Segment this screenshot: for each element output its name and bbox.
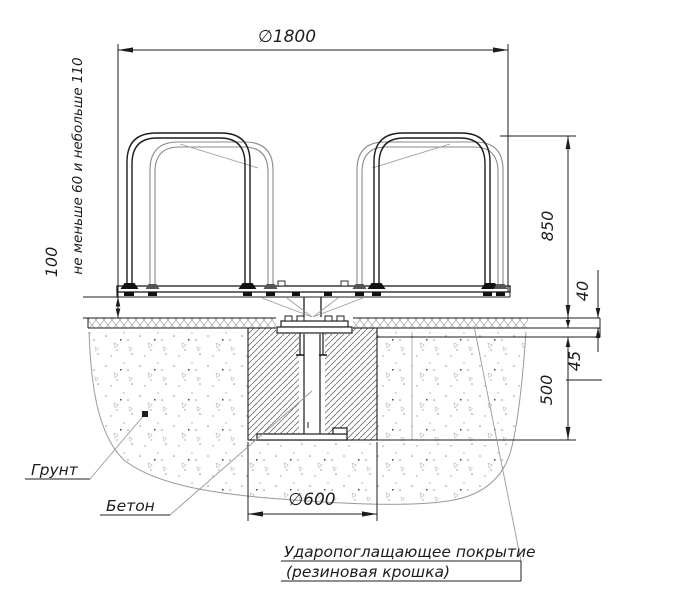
dimension-platform-clearance <box>83 297 120 318</box>
handrail-right <box>353 133 508 289</box>
dimension-coating-thickness <box>596 270 601 352</box>
dim-text-platform-diameter: ∅1800 <box>258 27 316 47</box>
dim-text-coating-thickness: 40 <box>573 281 592 301</box>
column-base-plate <box>257 434 347 440</box>
handrail-left <box>121 133 278 289</box>
svg-text:Грунт: Грунт <box>31 461 79 479</box>
drawing-canvas: ∅1800 не меньше 60 и небольше 110 100 85… <box>0 0 676 615</box>
dimension-platform-diameter <box>118 44 508 318</box>
svg-text:(резиновая крошка): (резиновая крошка) <box>286 563 450 581</box>
rail-foot <box>368 283 386 289</box>
dim-text-foundation-depth: 500 <box>537 375 556 406</box>
svg-text:Ударопоглащающее покрытие: Ударопоглащающее покрытие <box>284 543 536 561</box>
soil-leader-dot <box>142 411 148 417</box>
concrete-foundation <box>248 328 377 440</box>
dim-text-handrail-height: 850 <box>538 211 557 242</box>
technical-drawing-carousel-installation: ∅1800 не меньше 60 и небольше 110 100 85… <box>0 0 676 615</box>
underframe-struts <box>262 298 363 317</box>
svg-text:Бетон: Бетон <box>106 497 155 515</box>
rail-foot <box>121 283 139 289</box>
dim-text-clearance: 100 <box>42 247 61 278</box>
dim-note-clearance: не меньше 60 и небольше 110 <box>70 57 86 274</box>
dim-text-foundation-diameter: ∅600 <box>288 490 335 510</box>
central-column <box>262 297 363 319</box>
